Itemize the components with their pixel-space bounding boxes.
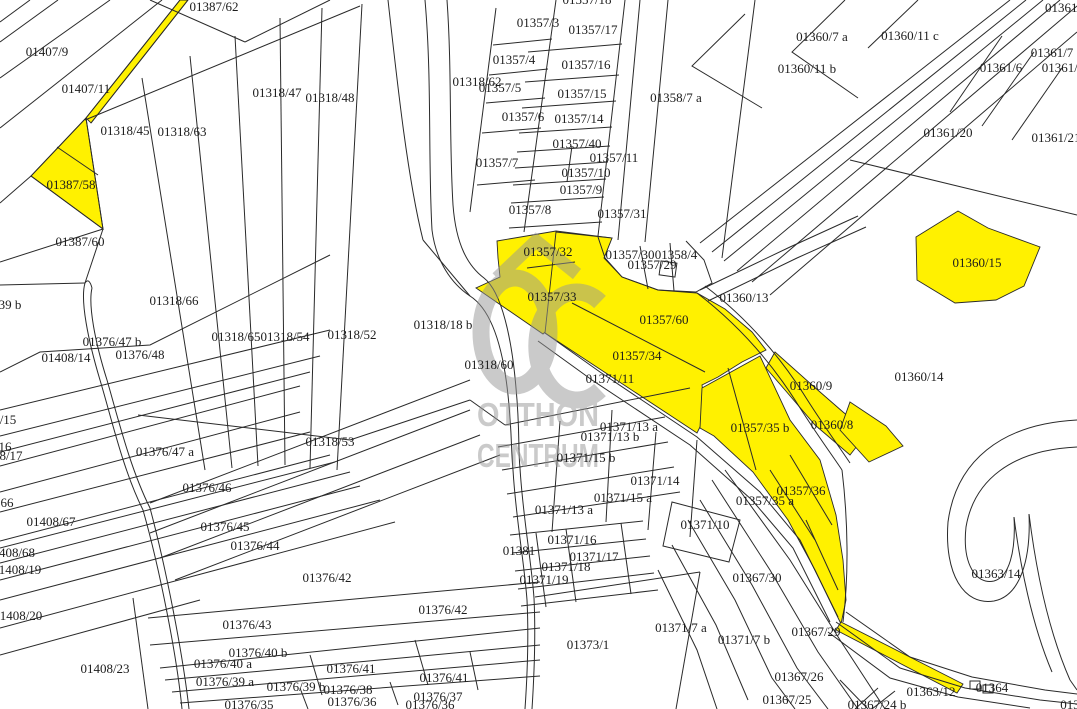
highlighted-parcel-01360-15 [916,211,1040,303]
watermark-text-line2: CENTRUM [477,437,599,474]
parcel-map-canvas: OTTHON CENTRUM [0,0,1077,709]
highlighted-parcel-sliver [86,0,188,123]
cadastral-map: OTTHON CENTRUM 01387/6201407/901407/1101… [0,0,1077,709]
highlighted-parcel-01387-58 [31,118,103,229]
watermark-text-line1: OTTHON [477,396,599,433]
highlighted-parcel-roadside-strip [836,622,963,693]
